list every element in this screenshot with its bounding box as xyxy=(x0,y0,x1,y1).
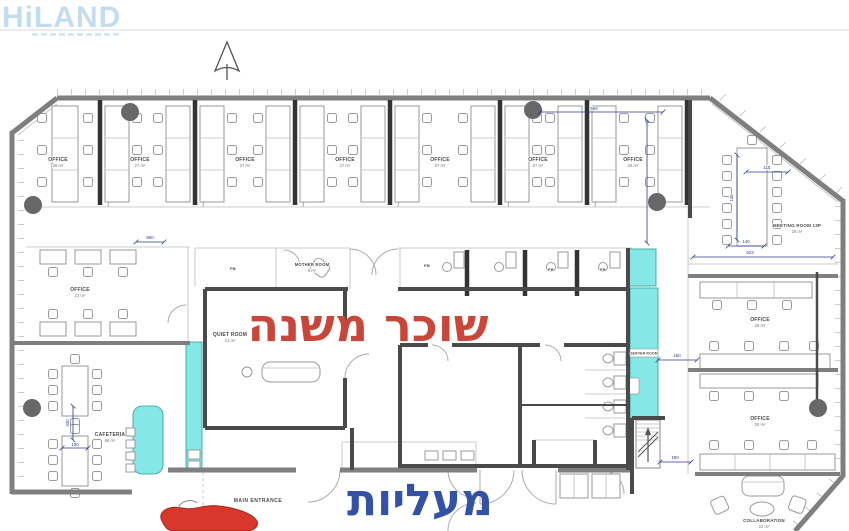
north-arrow-icon xyxy=(215,42,239,80)
office-area-6: 27 m² xyxy=(533,163,544,168)
office-area-3: 27 m² xyxy=(240,163,251,168)
brand-watermark: HiLAND xyxy=(2,1,121,34)
quiet-room-area: 21 m² xyxy=(225,338,236,343)
dim-cafeteria-h: 100 xyxy=(71,442,79,447)
collaboration-label: COLLABORATION xyxy=(743,518,785,523)
dim-meeting-width: 115 xyxy=(764,165,772,170)
pb-label-3: PB xyxy=(548,267,554,272)
dim-meeting-height: 146 xyxy=(729,194,734,202)
pb-label-4: PB xyxy=(600,267,606,272)
staircase xyxy=(636,420,660,468)
left-office-area: 23 m² xyxy=(75,293,86,298)
highlight-kitchen-strip xyxy=(186,342,202,468)
highlight-room-top xyxy=(629,249,656,286)
dim-cafeteria-v: 330 xyxy=(65,419,70,427)
dim-server: 150 xyxy=(673,353,681,358)
pb-label-2: PB xyxy=(424,263,430,268)
subtenant-overlay-text: שוכר משנה xyxy=(247,298,488,352)
office-area-1: 28 m² xyxy=(53,163,64,168)
dim-stairs: 150 xyxy=(671,455,679,460)
highlight-cafeteria-island xyxy=(133,406,163,474)
pb-label-1: PB xyxy=(230,266,236,271)
office-area-4: 27 m² xyxy=(340,163,351,168)
dim-right-long: 623 xyxy=(746,250,754,255)
mother-room-area: 5 m² xyxy=(308,268,317,273)
collaboration-area: 22 m² xyxy=(759,524,770,529)
office-area-7: 26 m² xyxy=(628,163,639,168)
office-area-2: 27 m² xyxy=(135,163,146,168)
cafeteria-area: 66 m² xyxy=(105,438,116,443)
mother-room-label: MOTHER ROOM xyxy=(295,262,330,267)
main-entrance-label: MAIN ENTRANCE xyxy=(234,498,283,504)
dim-top: 593 xyxy=(590,106,598,111)
red-marker-blob xyxy=(161,501,258,531)
floorplan-sheet: HiLAND xyxy=(0,0,849,531)
elevators-overlay-text: מעליות xyxy=(347,475,493,526)
meeting-room-label: MEETING ROOM 13P xyxy=(773,223,821,228)
office-area-5: 27 m² xyxy=(435,163,446,168)
meeting-room-area: 26 m² xyxy=(792,229,803,234)
dim-meeting-depth: 140 xyxy=(742,239,750,244)
server-room-label: SERVER ROOM xyxy=(630,352,658,356)
dim-corridor: 500 xyxy=(146,235,154,240)
right-office-area-2: 26 m² xyxy=(755,422,766,427)
right-office-area-1: 26 m² xyxy=(755,323,766,328)
